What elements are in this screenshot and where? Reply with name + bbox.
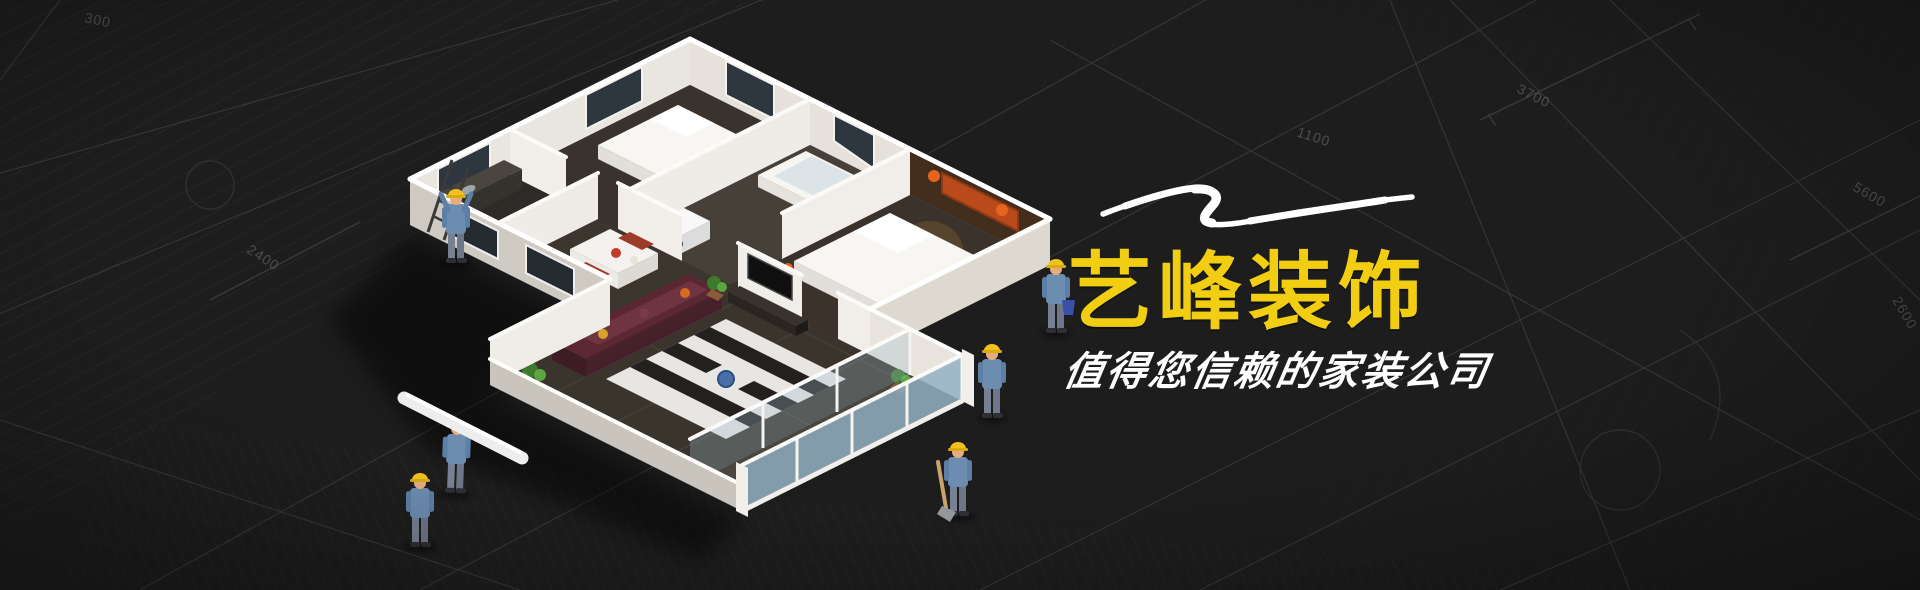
- worker-walking-with-plan: [406, 473, 434, 547]
- lantern: [996, 204, 1008, 216]
- cushion: [598, 329, 608, 339]
- white-brush-swoosh: [1103, 188, 1412, 225]
- cushion: [639, 308, 649, 318]
- hero-banner: 3700 5600 2600 1100 2400 300: [0, 0, 1920, 590]
- cushion: [680, 288, 690, 298]
- worker-with-shovel: [937, 442, 975, 522]
- apartment-illustration: [0, 0, 1920, 590]
- corner-pillar: [736, 462, 748, 517]
- corner-pillar: [962, 349, 974, 407]
- banner-subtitle: 值得您信赖的家装公司: [1060, 350, 1493, 394]
- lantern: [928, 170, 940, 182]
- worker-standing-back: [977, 344, 1007, 423]
- banner-title: 艺峰装饰: [1068, 248, 1428, 337]
